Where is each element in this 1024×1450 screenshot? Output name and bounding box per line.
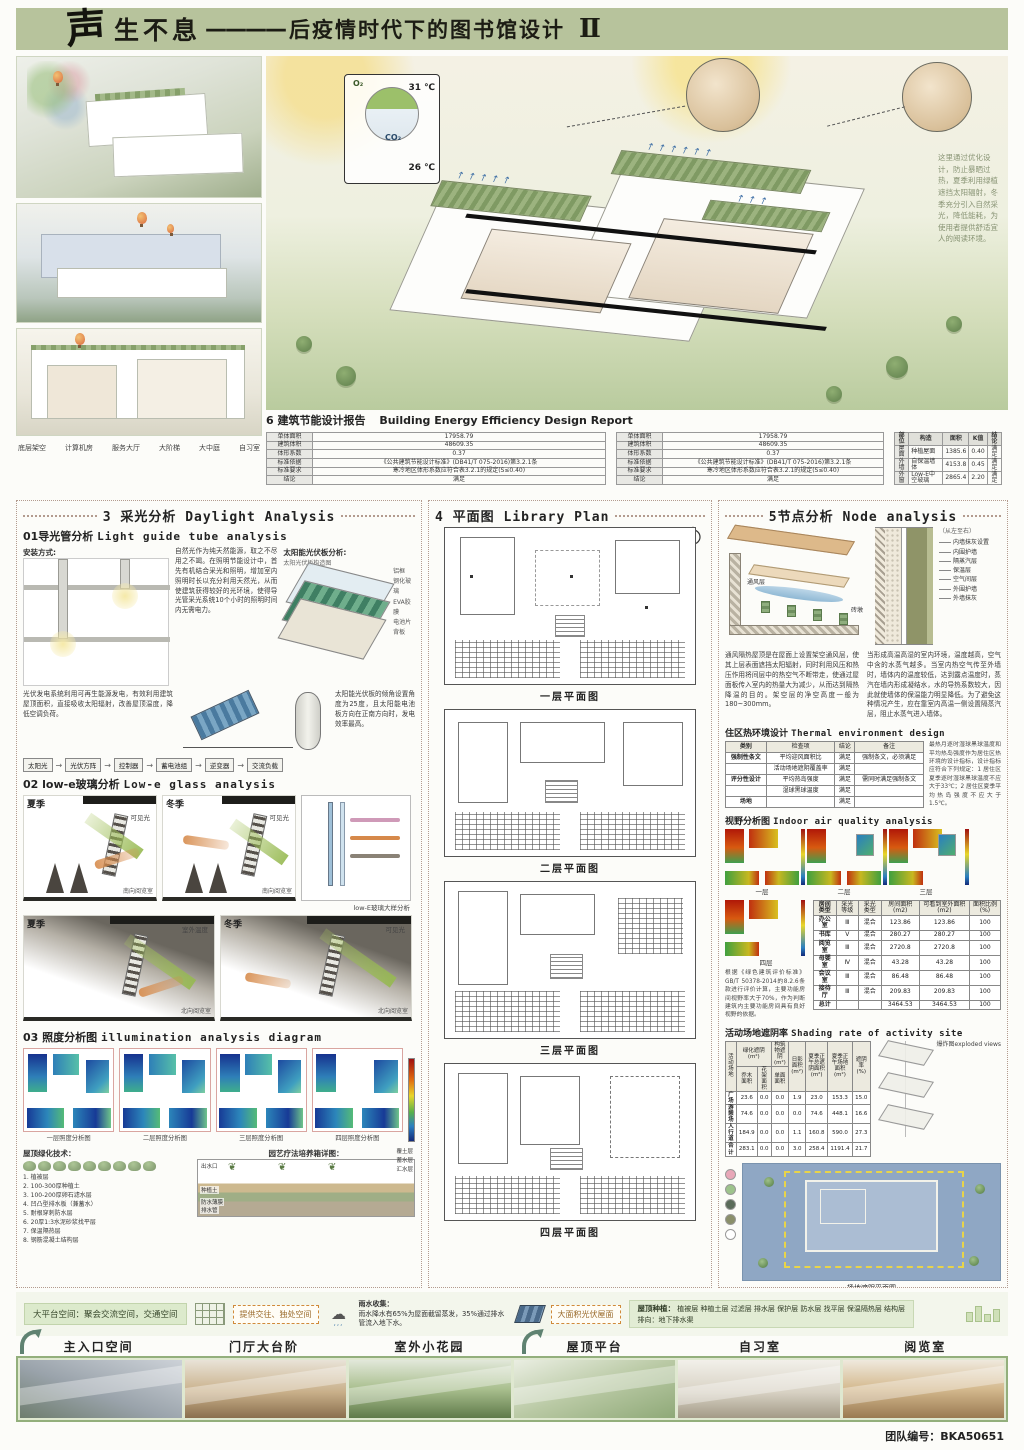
- table-header-cell: 夏季正午场地面积(m²): [827, 1041, 852, 1091]
- table-cell: 123.86: [919, 916, 969, 931]
- heatmap-zone: [725, 829, 744, 863]
- illumination-map-4f: [312, 1048, 403, 1132]
- garden-box-title: 园艺疗法培养箱详图：: [197, 1148, 415, 1159]
- table-cell: 体形系数: [267, 450, 313, 459]
- section-label: 大阶梯: [159, 443, 180, 453]
- section4-en: Library Plan: [504, 510, 610, 525]
- table-cell: 43.28: [881, 955, 919, 970]
- heatmap-zone: [266, 1108, 303, 1128]
- ground-line: [183, 747, 293, 748]
- section-label-row: 底层架空 计算机房 服务大厅 大阶梯 大中庭 自习室: [16, 441, 262, 453]
- table-row: 接待厅Ⅲ混合209.83209.83100: [814, 985, 1001, 1000]
- room-label: 南向阅览室: [123, 886, 153, 895]
- table-header-cell: 单面面积: [771, 1066, 788, 1091]
- tree: [758, 1258, 768, 1268]
- table-cell: 0.0: [771, 1105, 788, 1124]
- table-cell: 74.6: [806, 1105, 828, 1124]
- view-floor-caption: 四层: [725, 957, 807, 967]
- room: [520, 894, 595, 935]
- lowe-en: Low-e glass analysis: [124, 778, 276, 791]
- flow-node: 光伏方阵: [65, 758, 101, 772]
- shading-title: 活动场地遮阴率 Shading rate of activity site 爆炸…: [725, 1026, 1001, 1039]
- courtyard-outline: [820, 1189, 866, 1224]
- view-heatmap-3f: [889, 829, 963, 885]
- table-cell: 2720.8: [881, 940, 919, 955]
- brick-pier: [813, 609, 822, 621]
- floor-plan-3: [444, 881, 696, 1039]
- reading-desks: [580, 812, 685, 850]
- beam-label: 可见光: [131, 812, 151, 822]
- tilted-pv-panel: [191, 690, 260, 741]
- table-cell: 面积: [943, 433, 969, 446]
- building-mass: [112, 133, 243, 178]
- legend-dot-green: [725, 1184, 736, 1195]
- reading-desks: [455, 991, 560, 1032]
- illumination-caption: 一层照度分析图: [23, 1133, 114, 1142]
- photo-label-row: 主入口空间 门厅大台阶 室外小花园 屋顶平台 自习室 阅览室: [16, 1338, 1008, 1355]
- heatmap-zone: [28, 1054, 48, 1092]
- illumination-caption: 三层照度分析图: [216, 1133, 307, 1142]
- table-cell: 1.1: [789, 1124, 806, 1143]
- table-header-cell: 夏季正午总遮阴面积(m²): [806, 1041, 828, 1091]
- table-row: 阅览室Ⅲ混合2720.82720.8100: [814, 940, 1001, 955]
- pv-tilt-diagram: [179, 690, 329, 754]
- reading-desks: [580, 991, 685, 1032]
- table-cell: 1191.4: [827, 1143, 852, 1156]
- heatmap-zone: [278, 1060, 301, 1093]
- table-cell: 21.7: [852, 1143, 870, 1156]
- table-row: 标准要求寒冷地区体形系数应符合表3.2.1的规定(S≤0.40): [267, 467, 606, 476]
- reading-desks: [618, 898, 683, 954]
- season-label: 夏季: [27, 917, 45, 930]
- table-cell: 满足: [663, 476, 884, 485]
- heatmap-zone: [86, 1060, 109, 1093]
- arrow-icon: →: [237, 761, 244, 770]
- left-render-column: 底层架空 计算机房 服务大厅 大阶梯 大中庭 自习室: [16, 56, 262, 490]
- table-cell: 单体面积: [617, 433, 663, 442]
- table-cell: [766, 797, 835, 808]
- section3-zh: 采光分析: [120, 510, 176, 525]
- beam-label: 室外温度: [182, 924, 208, 934]
- light-tube-diagram: [23, 558, 169, 686]
- table-cell: 2720.8: [919, 940, 969, 955]
- floor-plan-block: 一层平面图: [435, 527, 705, 703]
- building-mass: [57, 268, 227, 298]
- masonry-stripe: [885, 528, 901, 644]
- section5-en: Node analysis: [842, 510, 957, 525]
- table-cell: 检查项: [766, 742, 835, 753]
- thermal-note: 最热月逐时湿球黑球温度和平均热岛强度作为居住区热环境的设计指标，设计指标应符合下…: [929, 741, 1001, 808]
- table-cell: 1.9: [789, 1092, 806, 1105]
- table-cell: 游憩场: [726, 1105, 737, 1124]
- table-row: 结论满足: [267, 476, 606, 485]
- sustainability-strip: 大平台空间：聚会交流空间，交通空间 提供交往、独处空间 ☁,,, 雨水收集： 雨…: [16, 1292, 1008, 1336]
- view-heatmap-2f: [807, 829, 881, 885]
- table-cell: 0.37: [663, 450, 884, 459]
- rain-title: 雨水收集：: [359, 1300, 509, 1309]
- pv-system-flowchart: 太阳光→ 光伏方阵→ 控制器→ 蓄电池组→ 逆变器→ 交流负载: [23, 758, 415, 772]
- green-roof-plants-icon: [23, 1161, 191, 1171]
- vent-layer-label: 通风层: [747, 577, 765, 586]
- heatmap-zone: [123, 1108, 160, 1128]
- plan-caption: 二层平面图: [435, 860, 705, 875]
- energy-heading-zh: 6 建筑节能设计报告: [266, 414, 365, 427]
- section-label: 自习室: [239, 443, 260, 453]
- table-cell: 混合: [859, 916, 882, 931]
- table-cell: 标准要求: [267, 467, 313, 476]
- photo-band: [16, 1356, 1008, 1422]
- heatmap-zone: [220, 1054, 240, 1092]
- pv-structure-caption: 太阳光伏板构造图: [283, 558, 415, 567]
- table-cell: 体形系数: [617, 450, 663, 459]
- table-cell: 活动场地遮阴覆盖率: [766, 764, 835, 775]
- table-cell: 备注: [855, 742, 924, 753]
- table-row: 活动场地遮阴覆盖率满足: [726, 764, 924, 775]
- view-heatmap-1f: [725, 829, 799, 885]
- wall-section-diagram: （从左至右） 内墙抹灰设置 内围护墙 隔蒸汽层 保温层 空气间层 外围护墙 外墙…: [875, 527, 989, 645]
- wall-hatch: [729, 553, 741, 629]
- exploded-level: [878, 1040, 934, 1066]
- table-cell: 0.45: [969, 459, 987, 472]
- table-cell: Ⅴ: [836, 931, 859, 941]
- table-cell: 母婴室: [814, 955, 837, 970]
- section-label: 计算机房: [65, 443, 93, 453]
- table-row: 总计3464.533464.53100: [814, 1000, 1001, 1010]
- table-cell: 标准要求: [617, 467, 663, 476]
- table-cell: 123.86: [881, 916, 919, 931]
- table-cell: 280.27: [919, 931, 969, 941]
- dotted-leader: [725, 515, 763, 517]
- table-cell: 结论: [835, 742, 855, 753]
- table-cell: 阅览室: [814, 940, 837, 955]
- table-header-cell: 绿化遮阴(m²): [736, 1041, 771, 1066]
- solar-collector-tube: [295, 692, 321, 750]
- photo-main-entrance: [20, 1360, 182, 1418]
- table-cell: 3464.53: [881, 1000, 919, 1010]
- table-row: 人行道184.90.00.01.1160.8590.027.3: [726, 1124, 871, 1143]
- arrow-icon: →: [56, 761, 63, 770]
- table-cell: 160.8: [806, 1124, 828, 1143]
- photo-lobby-stairs: [185, 1360, 347, 1418]
- heatmap-zone: [182, 1060, 205, 1093]
- table-cell: 满足: [835, 797, 855, 808]
- table-cell: 房间类型: [814, 901, 837, 916]
- table-cell: 86.48: [881, 970, 919, 985]
- table-cell: [859, 1000, 882, 1010]
- photo-label: 室外小花园: [347, 1338, 512, 1355]
- view-analysis-title: 视野分析图 Indoor air quality analysis: [725, 814, 1001, 827]
- table-cell: 混合: [859, 970, 882, 985]
- tree: [336, 366, 356, 386]
- reading-desks: [455, 1176, 560, 1213]
- brick-pier: [839, 613, 848, 625]
- arrow-icon: →: [146, 761, 153, 770]
- photo-highlight: [20, 1362, 182, 1411]
- table-cell: 构造: [909, 433, 943, 446]
- table-header-cell: 乔木面积: [736, 1066, 757, 1091]
- exploded-views-label: 爆炸图exploded views: [937, 1039, 1001, 1048]
- table-cell: 强制条文，必须满足: [855, 753, 924, 764]
- table-row: 标准依据《公共建筑节能设计标准》(DB41/T 075-2016)第3.2.1条: [617, 458, 884, 467]
- reading-desks: [455, 640, 560, 677]
- exterior-render-2: [16, 203, 262, 323]
- table-cell: 结论: [267, 476, 313, 485]
- section3-en: Daylight Analysis: [185, 510, 335, 525]
- table-cell: 满足: [835, 753, 855, 764]
- courtyard: [535, 550, 600, 606]
- main-axonometric-render: ↑↑↑↑↑ ↑↑↑↑↑↑ ↑↑↑ O₂ 31 ℃ CO₂ 26 ℃ 这里通过优化…: [266, 56, 1008, 410]
- wall-layer-label: 外墙抹灰: [939, 594, 989, 603]
- table-row: 办公室Ⅲ混合123.86123.86100: [814, 916, 1001, 931]
- interior-space: [137, 359, 227, 419]
- roof-greening-title: 屋顶绿化技术：: [23, 1148, 191, 1159]
- wall-layer-label: 保温层: [939, 566, 989, 575]
- solar-panel-icon: [514, 1305, 546, 1323]
- photo-label: 自习室: [677, 1338, 842, 1355]
- planter-side-legend: 覆土层 蓄水层 汇水层: [396, 1148, 413, 1174]
- table-cell: 100: [969, 931, 1000, 941]
- legend-dot-dark: [725, 1199, 736, 1210]
- heatmap-zone: [765, 871, 799, 886]
- photo-roof-terrace: [514, 1360, 676, 1418]
- heatmap-zone: [725, 900, 744, 934]
- planter-label: 防水薄膜: [200, 1198, 224, 1206]
- table-header-cell: 构筑物遮阴(m²): [771, 1041, 788, 1066]
- table-row: 外窗Low-E中空玻璃2865.42.20满足: [895, 472, 1002, 485]
- table-cell: 混合: [859, 931, 882, 941]
- table-cell: 280.27: [881, 931, 919, 941]
- room: [458, 1073, 508, 1163]
- view-floor-caption: 一层: [725, 886, 799, 896]
- heatmap-zone: [725, 942, 759, 957]
- table-cell: Ⅳ: [836, 955, 859, 970]
- table-cell: 满足: [835, 775, 855, 786]
- lowe-subhead: 02 low-e玻璃分析 Low-e glass analysis: [23, 776, 415, 792]
- heatmap-zone: [316, 1054, 336, 1092]
- hot-air-balloon-icon: [75, 333, 85, 345]
- section4-zh: 平面图: [453, 510, 495, 525]
- beam-label: 可见光: [270, 812, 290, 822]
- energy-report-heading: 6 建筑节能设计报告 Building Energy Efficiency De…: [266, 412, 1008, 428]
- illumination-map-3f: [216, 1048, 307, 1132]
- calligraphy-glyph: 声: [65, 9, 108, 50]
- title-banner: 声 生不息 ———— 后疫情时代下的图书馆设计 Ⅱ: [16, 8, 1008, 50]
- wall-layer-label: 内墙抹灰设置: [939, 538, 989, 547]
- table-cell: [726, 786, 767, 797]
- flow-node: 控制器: [114, 758, 144, 772]
- o2-label: O₂: [353, 79, 363, 88]
- site-legend: [725, 1163, 736, 1288]
- table-cell: 混合: [859, 955, 882, 970]
- plan-caption: 四层平面图: [435, 1224, 705, 1239]
- table-cell: 258.4: [806, 1143, 828, 1156]
- view-heatmap-4f: [725, 900, 799, 956]
- light-tube-en: Light guide tube analysis: [97, 530, 288, 543]
- lowe-diagram-summer-south: 夏季 可见光 南向阅览室: [23, 795, 157, 901]
- plant-icon: ❦: [278, 1162, 286, 1173]
- roof-bar: [307, 916, 412, 924]
- stairs: [550, 1148, 583, 1170]
- heatmap-zone: [725, 871, 759, 886]
- table-cell: 外墙: [895, 459, 909, 472]
- table-cell: 0.0: [757, 1092, 771, 1105]
- table-cell: 满足: [835, 786, 855, 797]
- photo-highlight: [185, 1362, 347, 1411]
- wall-layer-labels: （从左至右） 内墙抹灰设置 内围护墙 隔蒸汽层 保温层 空气间层 外围护墙 外墙…: [939, 527, 989, 645]
- table-cell: 590.0: [827, 1124, 852, 1143]
- table-cell: 结论: [617, 476, 663, 485]
- drain-note: 排向：地下排水渠: [638, 1316, 694, 1324]
- illumination-en: illumination analysis diagram: [101, 1031, 322, 1044]
- table-cell: 《公共建筑节能设计标准》(DB41/T 075-2016)第3.2.1条: [663, 458, 884, 467]
- table-row: 强制性条文平均迎风面积比满足强制条文，必须满足: [726, 753, 924, 764]
- pv-layer-labels: 铝框 钢化玻璃 EVA胶膜 电池片 背板: [393, 567, 415, 657]
- table-cell: 100: [969, 916, 1000, 931]
- view-note: 根据《绿色建筑评价标准》GB/T 50378-2014的8.2.6条款进行评价计…: [725, 969, 805, 1019]
- table-row: 广场23.60.00.01.923.0153.315.0: [726, 1092, 871, 1105]
- room: [623, 722, 683, 786]
- flow-node: 蓄电池组: [156, 758, 192, 772]
- poster-subtitle: 后疫情时代下的图书馆设计: [289, 14, 565, 44]
- table-cell: 100: [969, 970, 1000, 985]
- daylight-paragraph: 自然光作为纯天然能源，取之不尽用之不竭。在照明节能设计中，首先有机结合采光和照明…: [175, 547, 277, 686]
- table-cell: 1385.6: [943, 446, 969, 459]
- table-cell: 采光类型: [859, 901, 882, 916]
- light-tube-subhead: 01导光管分析 Light guide tube analysis: [23, 528, 415, 544]
- thermal-zh: 住区热环境设计: [725, 729, 788, 739]
- table-cell: Ⅲ: [836, 970, 859, 985]
- table-cell: 86.48: [919, 970, 969, 985]
- planter-label: 排水管: [200, 1206, 219, 1214]
- dotted-leader: [615, 515, 705, 517]
- table-cell: 满足: [835, 764, 855, 775]
- photo-outdoor-garden: [349, 1360, 511, 1418]
- stairs: [555, 615, 585, 637]
- roof-bar: [83, 796, 156, 804]
- table-cell: 评分性设计: [726, 775, 767, 786]
- pv-roof-note: 大面积光伏屋面: [551, 1305, 621, 1324]
- photo-study-room: [678, 1360, 840, 1418]
- heatmap-zone: [53, 1054, 80, 1075]
- heatmap-zone: [149, 1054, 176, 1075]
- room: [615, 540, 680, 593]
- planter-label: 种植土: [200, 1186, 219, 1194]
- energy-heading-en: Building Energy Efficiency Design Report: [379, 414, 632, 427]
- table-cell: 采光等级: [836, 901, 859, 916]
- table-cell: 0.0: [757, 1105, 771, 1124]
- heatmap-zone: [124, 1054, 144, 1092]
- microclimate-diagram: O₂ 31 ℃ CO₂ 26 ℃: [344, 74, 440, 184]
- table-cell: [726, 764, 767, 775]
- table-cell: 广场: [726, 1092, 737, 1105]
- photo-highlight: [678, 1362, 840, 1411]
- table-row: 游憩场74.60.00.00.074.6448.116.6: [726, 1105, 871, 1124]
- daylight-analysis-column: 3 采光分析 Daylight Analysis 01导光管分析 Light g…: [16, 500, 422, 1288]
- exploded-level: [878, 1072, 934, 1098]
- glass-pane: [340, 802, 345, 886]
- ray-line: [350, 818, 400, 822]
- pv-exploded-diagram: [283, 573, 391, 657]
- table-cell: Ⅲ: [836, 985, 859, 1000]
- pv-tilt-note: 太阳能光伏板的倾角设置角度为25度，且太阳能电池板方向在正南方向时，发电效率最高…: [335, 690, 415, 730]
- co2-label: CO₂: [385, 133, 401, 142]
- table-cell: 0.37: [313, 450, 606, 459]
- table-cell: 16.6: [852, 1105, 870, 1124]
- table-row: 结论满足: [617, 476, 884, 485]
- heatmap-zone: [245, 1054, 272, 1075]
- table-cell: 0.0: [757, 1124, 771, 1143]
- energy-table-3: 部位构造面积K值结论 屋面种植屋面1385.60.40满足 外墙自保温墙体415…: [894, 432, 1002, 485]
- reading-desks: [580, 640, 685, 677]
- table-cell: 2865.4: [943, 472, 969, 485]
- heatmap-zone: [749, 829, 779, 848]
- vapor-barrier-paragraph: 当形成高温高湿的室内环境，温度越高，空气中含的水蒸气越多。当室内热空气传至外墙时…: [867, 651, 1001, 720]
- exploded-axon: [877, 1041, 937, 1137]
- table-cell: Ⅲ: [836, 940, 859, 955]
- light-tube: [58, 559, 68, 639]
- roof-planting-note: 屋顶种植： 植被层 种植土层 过滤层 排水层 保护层 防水层 找平层 保温隔热层…: [629, 1300, 915, 1328]
- ray-line: [350, 854, 400, 858]
- shading-zh: 活动场地遮阴率: [725, 1029, 788, 1039]
- table-cell: 会议室: [814, 970, 837, 985]
- heatmap-zone: [315, 1108, 352, 1128]
- table-cell: 寒冷地区体形系数应符合表3.2.1的规定(S≤0.40): [663, 467, 884, 476]
- table-cell: 100: [969, 940, 1000, 955]
- table-cell: 办公室: [814, 916, 837, 931]
- view-thumb-block: 一层: [725, 829, 799, 896]
- tree: [764, 1177, 774, 1187]
- energy-report-section: 6 建筑节能设计报告 Building Energy Efficiency De…: [266, 412, 1008, 492]
- roof-node-paragraph: 通风隔热屋顶是在屋面上设置架空通风层，使其上层表面遮挡太阳辐射，同时利用风压和热…: [725, 651, 859, 720]
- table-cell: 人行道: [726, 1124, 737, 1143]
- table-cell: 标准依据: [267, 458, 313, 467]
- poster-title: 生不息: [114, 11, 201, 47]
- table-cell: 15.0: [852, 1092, 870, 1105]
- table-header-cell: 花架面积: [757, 1066, 771, 1091]
- table-cell: 23.0: [806, 1092, 828, 1105]
- heatmap-zone: [27, 1108, 64, 1128]
- table-row: 建筑体积48609.35: [617, 441, 884, 450]
- shading-table: 活动场地 绿化遮阴(m²) 构筑物遮阴(m²) 日影面积(m²) 夏季正午总遮阴…: [725, 1041, 871, 1157]
- table-cell: Ⅲ: [836, 916, 859, 931]
- thermal-design-title: 住区热环境设计 Thermal environment design: [725, 726, 1001, 739]
- daylight-section-header: 3 采光分析 Daylight Analysis: [23, 506, 415, 525]
- tree: [826, 386, 842, 402]
- plan-caption: 三层平面图: [435, 1042, 705, 1057]
- table-cell: 283.1: [736, 1143, 757, 1156]
- table-cell: 湿球黑球温度: [766, 786, 835, 797]
- table-cell: 74.6: [736, 1105, 757, 1124]
- table-header-row: 房间类型采光等级采光类型房间面积(m2)可看到室外面积(m2)面积比例(%): [814, 901, 1001, 916]
- callout-leader-line: [827, 106, 905, 126]
- lowe-detail-caption: low-E玻璃大样分析: [353, 902, 410, 912]
- section-label: 大中庭: [199, 443, 220, 453]
- table-cell: 平均迎风面积比: [766, 753, 835, 764]
- ray-line: [350, 836, 400, 840]
- table-cell: 27.3: [852, 1124, 870, 1143]
- heatmap-zone: [807, 829, 826, 863]
- table-cell: 屋面: [895, 446, 909, 459]
- view-thumb-block: 二层: [807, 829, 881, 896]
- table-header-row: 部位构造面积K值结论: [895, 433, 1002, 446]
- table-cell: 0.0: [771, 1124, 788, 1143]
- table-cell: 0.0: [771, 1092, 788, 1105]
- table-cell: 0.40: [969, 446, 987, 459]
- plan-caption: 一层平面图: [435, 688, 705, 703]
- table-cell: 0.0: [789, 1105, 806, 1124]
- roof-terrace: [610, 1076, 680, 1157]
- floor-plan-2: [444, 709, 696, 857]
